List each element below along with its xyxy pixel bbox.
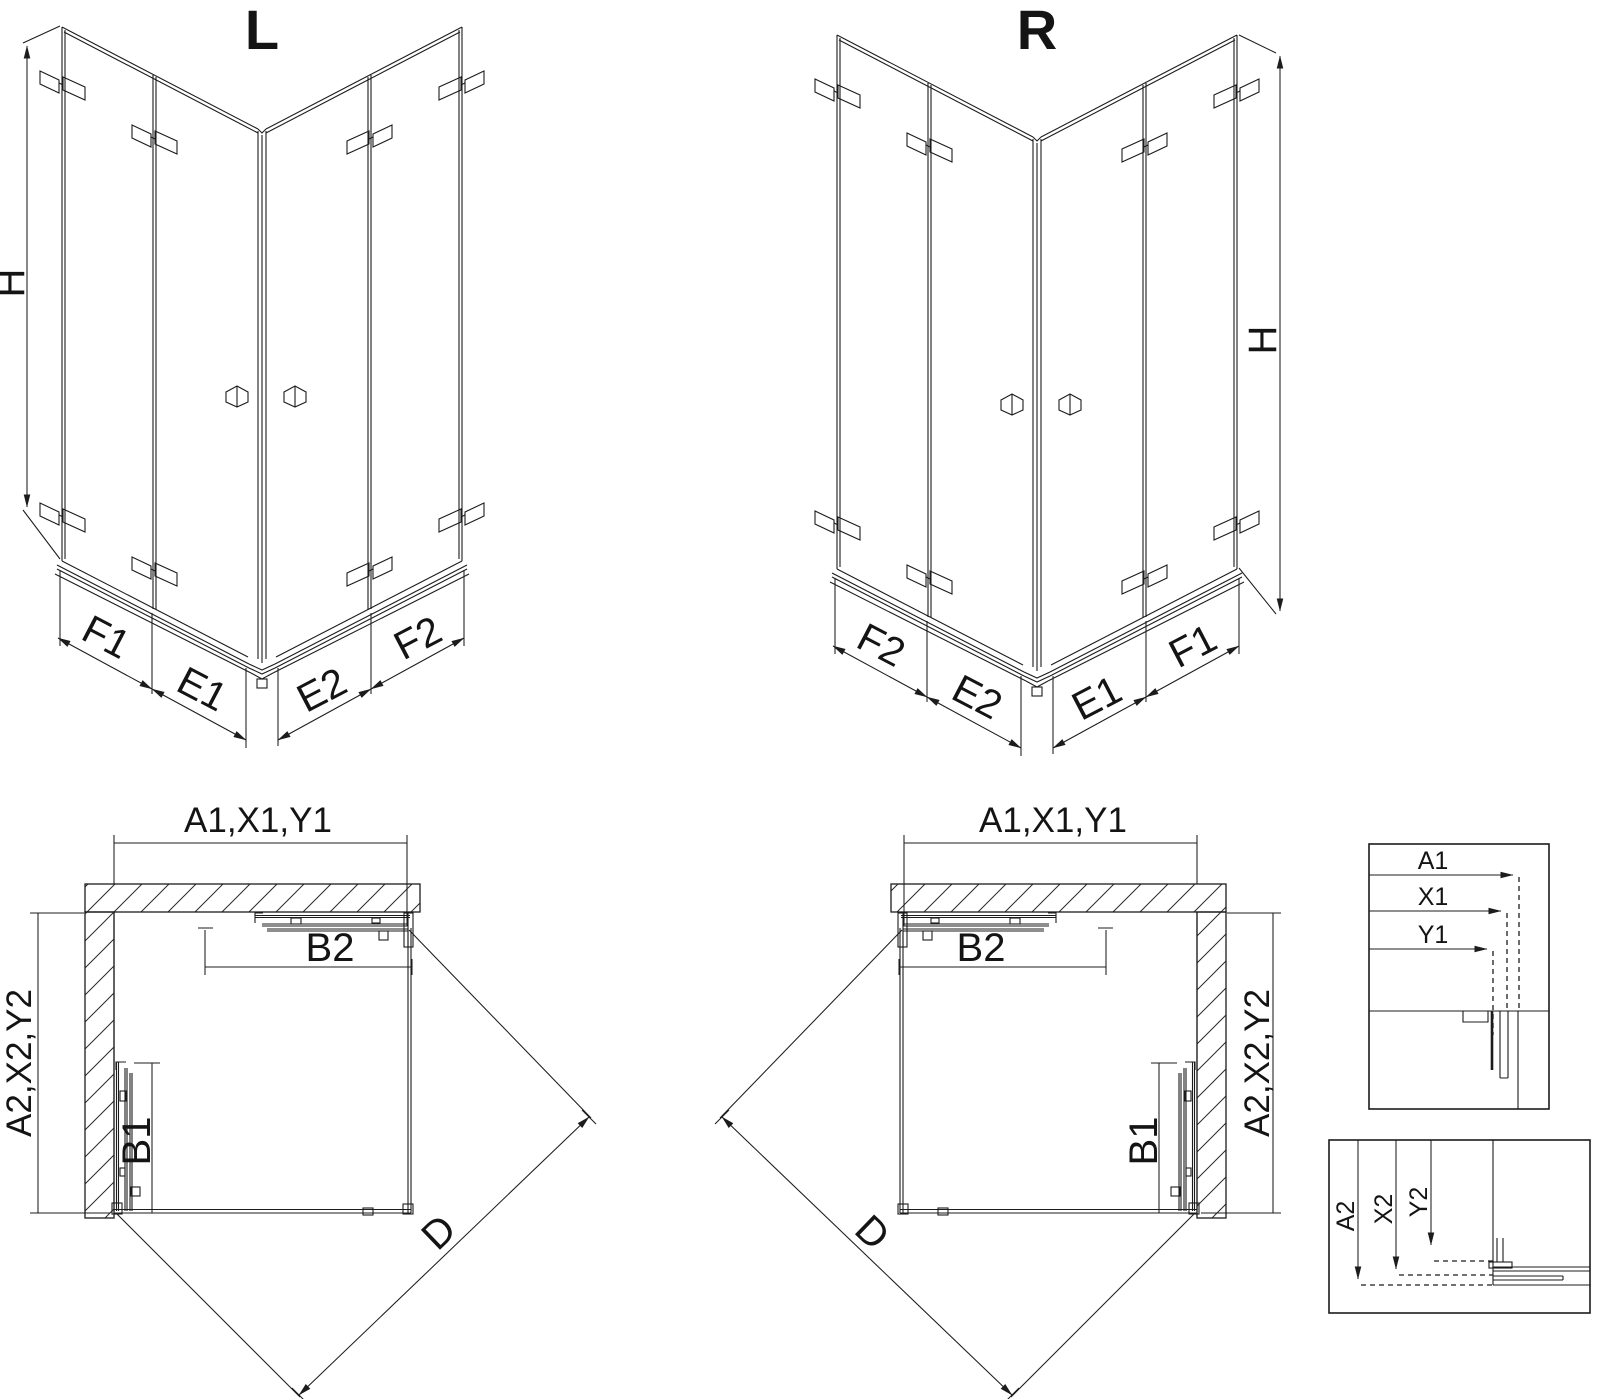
detail-y2-label: Y2: [1405, 1187, 1433, 1218]
wall-side-left-plan: [85, 912, 114, 1218]
wall-top-left-plan: [85, 884, 420, 912]
plan-left-b2-label: B2: [306, 926, 355, 970]
detail-y1-label: Y1: [1418, 921, 1449, 949]
wall-top-right-plan: [891, 884, 1226, 912]
dim-label-h-right: H: [1241, 326, 1285, 355]
plan-right-width-label: A1,X1,Y1: [979, 801, 1127, 840]
wall-side-right-plan: [1197, 912, 1226, 1218]
shower-enclosure-diagram: L H F1 E1 E2 F2 R H F2 E2 E1 F1: [0, 0, 1600, 1399]
sheet-background: [0, 0, 1600, 1399]
plan-right-b1-label: B1: [1122, 1117, 1166, 1166]
title-left: L: [245, 0, 279, 61]
detail-x2-label: X2: [1370, 1194, 1398, 1225]
plan-right-b2-label: B2: [957, 926, 1006, 970]
plan-right-depth-label: A2,X2,Y2: [1238, 989, 1277, 1137]
detail-x1-label: X1: [1418, 883, 1449, 911]
title-right: R: [1017, 0, 1057, 61]
plan-left-width-label: A1,X1,Y1: [184, 801, 332, 840]
detail-a2-label: A2: [1332, 1201, 1360, 1232]
dim-label-h-left: H: [0, 269, 33, 298]
technical-drawing-sheet: L H F1 E1 E2 F2 R H F2 E2 E1 F1: [0, 0, 1600, 1399]
plan-left-depth-label: A2,X2,Y2: [0, 989, 39, 1137]
plan-left-b1-label: B1: [115, 1117, 159, 1166]
detail-a1-label: A1: [1418, 847, 1449, 875]
